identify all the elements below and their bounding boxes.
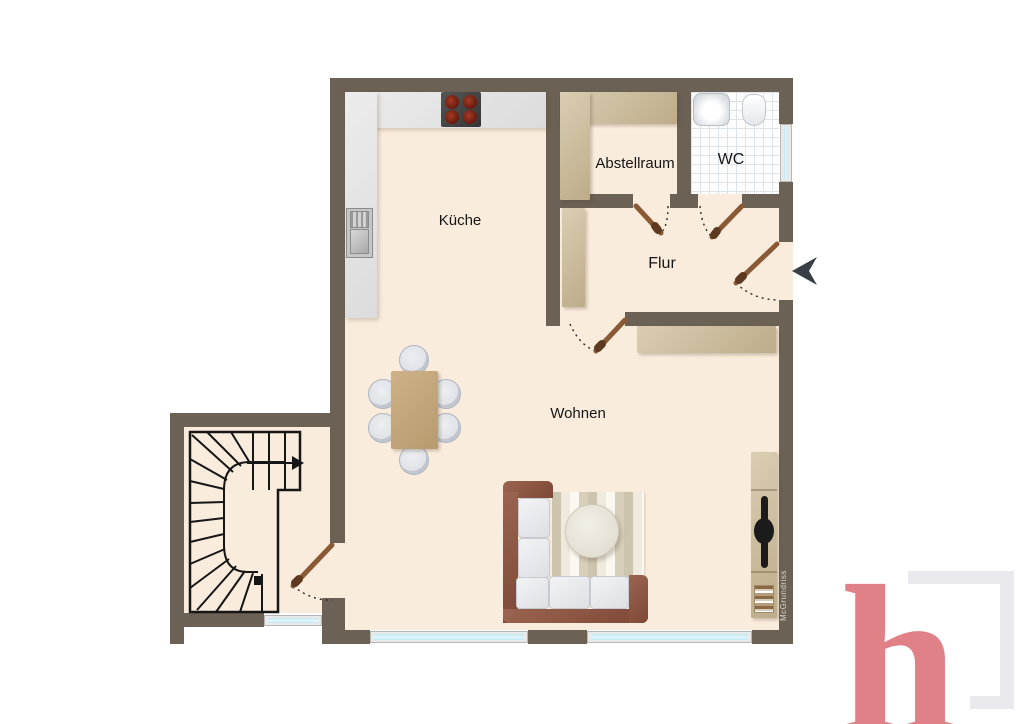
living-window-left xyxy=(370,631,528,643)
wall-right-upper xyxy=(779,78,793,124)
kitchen-counter-left xyxy=(345,92,377,318)
wall-flur-wohnen xyxy=(625,312,779,326)
entrance-arrow-icon xyxy=(792,257,817,285)
living-window-right xyxy=(587,631,752,643)
coffee-table xyxy=(565,504,619,558)
wall-top xyxy=(330,78,793,92)
sofa-cushion xyxy=(590,576,629,609)
sofa-cushion xyxy=(549,576,590,609)
sofa-arm-right xyxy=(629,575,648,623)
logo-frame-right xyxy=(1000,571,1014,709)
burner-icon xyxy=(445,110,459,124)
watermark-text: McGrundriss xyxy=(779,563,788,621)
wall-corner-annex xyxy=(322,598,345,644)
room-label-wohnen: Wohnen xyxy=(538,405,618,422)
burner-icon xyxy=(463,95,477,109)
wall-bottom-seg3 xyxy=(752,630,793,644)
annex-floor xyxy=(184,427,330,613)
room-label-kueche: Küche xyxy=(420,212,500,229)
hall-wardrobe xyxy=(562,208,585,307)
dining-chair xyxy=(399,445,429,475)
wall-kueche-flur-divider xyxy=(546,92,560,326)
wall-bottom-seg1 xyxy=(345,630,370,644)
burner-icon xyxy=(463,110,477,124)
room-label-abstellraum: Abstellraum xyxy=(575,155,695,172)
sofa-cushion xyxy=(518,498,550,538)
logo-frame-foot xyxy=(970,696,1014,709)
wall-right-mid xyxy=(779,182,793,242)
stove-icon xyxy=(441,92,481,127)
hall-sideboard xyxy=(637,326,776,353)
tv-icon xyxy=(754,518,774,544)
wall-annex-bottom xyxy=(170,613,264,627)
storage-shelf-left xyxy=(560,92,590,200)
toilet-icon xyxy=(742,94,766,126)
wall-abstellraum-flur-seg3 xyxy=(742,194,779,208)
dining-table xyxy=(391,371,438,449)
sideboard-divider xyxy=(751,571,777,573)
wall-annex-left xyxy=(170,413,184,644)
room-label-flur: Flur xyxy=(632,255,692,273)
wall-left-main xyxy=(330,78,345,543)
wc-sink-icon xyxy=(693,93,730,126)
kitchen-sink-icon xyxy=(346,208,373,258)
entrance-opening-floor xyxy=(779,242,793,300)
sofa-cushion xyxy=(518,538,550,578)
annex-window xyxy=(264,615,322,626)
annex-door-opening-floor xyxy=(330,543,345,598)
wall-bottom-seg2 xyxy=(528,630,587,644)
burner-icon xyxy=(445,95,459,109)
sofa-cushion xyxy=(516,577,549,609)
sideboard-divider xyxy=(751,489,777,491)
books-icon xyxy=(754,585,774,613)
wall-annex-top xyxy=(170,413,345,427)
wc-window xyxy=(780,124,792,182)
logo-letter: h xyxy=(840,554,958,724)
floorplan-canvas: Küche Abstellraum WC Flur Wohnen xyxy=(0,0,1024,724)
room-label-wc: WC xyxy=(706,151,756,169)
sofa-back-bottom xyxy=(503,609,648,623)
wall-abstellraum-wc-divider xyxy=(677,92,691,208)
